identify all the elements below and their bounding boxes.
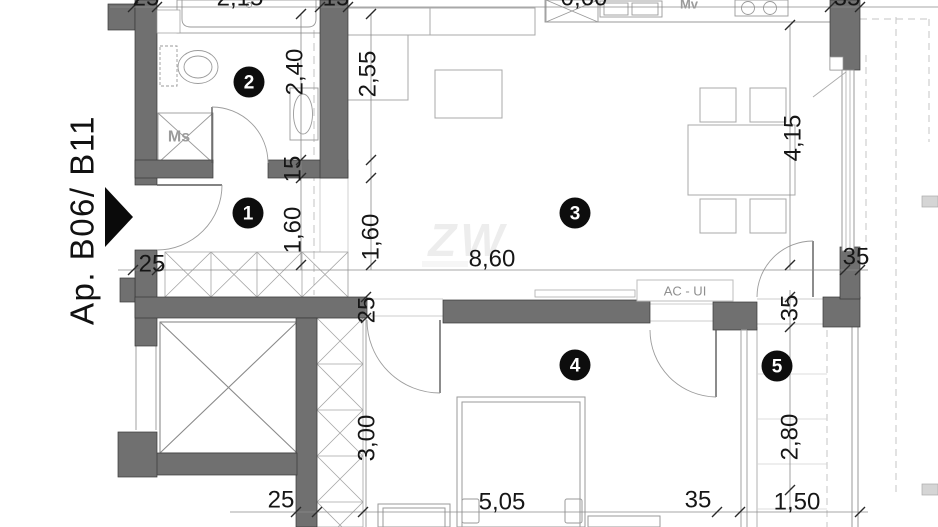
dim-total-width: 8,60	[469, 246, 516, 273]
dim-living-right: 4,15	[780, 115, 807, 162]
bedroom-balcony-window	[741, 330, 747, 527]
neighbor-balcony-tick-bottom	[922, 484, 938, 495]
dim-bathroom-height: 2,40	[282, 49, 309, 96]
ac-radiator	[535, 290, 635, 297]
dim-hall-width: 1,60	[280, 207, 307, 254]
bedroom-hall-door-swing	[367, 320, 440, 393]
dim-bottom-wall: 25	[268, 487, 295, 514]
hall-wardrobe-hatch	[165, 252, 348, 297]
dim-closet-wall: 25	[354, 297, 381, 324]
ac-unit-label: AC - UI	[664, 284, 707, 299]
apartment-label: Ap. B06/ B11	[64, 115, 101, 325]
kitchen-appliance-label: Mv	[680, 0, 699, 12]
bathroom-door-swing	[212, 107, 268, 163]
dining-chair	[700, 88, 736, 122]
wall-pier-notch	[157, 10, 180, 33]
dim-closet-length: 3,00	[354, 415, 381, 462]
nightstand	[588, 516, 660, 527]
room-number-balcony: 5	[772, 357, 783, 378]
nightstand	[378, 504, 450, 527]
dim-top-right: 35	[834, 0, 861, 12]
coffee-table	[435, 70, 502, 118]
dim-passage-width: 1,60	[358, 214, 385, 261]
floor-plan-page: AC - UI ZW Ap. B06/ B11 1 2 3 4 5 Ms Mv …	[0, 0, 938, 527]
ac-unit: AC - UI	[535, 280, 733, 301]
dim-balcony-width: 1,50	[774, 489, 821, 516]
floor-plan-drawing: AC - UI ZW Ap. B06/ B11 1 2 3 4 5 Ms Mv …	[0, 0, 938, 527]
wall-pier-notch	[830, 57, 843, 70]
open-window-leaf	[813, 72, 846, 97]
room-number-bedroom: 4	[570, 356, 581, 377]
dim-bottom-partition: 35	[685, 487, 712, 514]
dim-top-bath: 2,15	[217, 0, 264, 12]
stove	[735, 0, 788, 16]
room-number-living: 3	[570, 204, 581, 225]
pillow	[462, 499, 479, 523]
toilet-tank	[160, 46, 177, 86]
dim-balcony-door: 35	[777, 295, 804, 322]
room-number-hall: 1	[243, 204, 254, 225]
stove-burner	[742, 2, 755, 15]
elevator-shaft	[136, 322, 297, 453]
dim-right-wall: 35	[843, 244, 870, 271]
dining-chair	[750, 199, 786, 233]
neighbor-balcony-tick-top	[922, 196, 938, 207]
stove-burner	[764, 2, 777, 15]
dim-living-left: 2,55	[355, 51, 382, 98]
dining-chair	[700, 199, 736, 233]
living-room-window	[813, 70, 854, 251]
dim-bedroom-width: 5,05	[479, 489, 526, 516]
dim-top-kitchen: 0,60	[561, 0, 608, 12]
entrance-door-swing	[157, 185, 222, 250]
dim-left-wall: 25	[139, 251, 166, 278]
pillow	[565, 499, 582, 523]
entrance-arrow-icon	[105, 187, 133, 247]
dim-balcony-depth: 2,80	[777, 414, 804, 461]
room-number-bathroom: 2	[244, 73, 255, 94]
bedroom-living-door-swing	[650, 330, 716, 397]
balcony-door-swing	[757, 241, 813, 297]
watermark-subtext-bar	[422, 261, 468, 267]
dim-top-wall: 25	[133, 0, 160, 12]
dim-top-partition: 15	[323, 0, 350, 12]
washing-machine-label: Ms	[168, 129, 190, 146]
dim-door-wall: 15	[280, 156, 307, 183]
